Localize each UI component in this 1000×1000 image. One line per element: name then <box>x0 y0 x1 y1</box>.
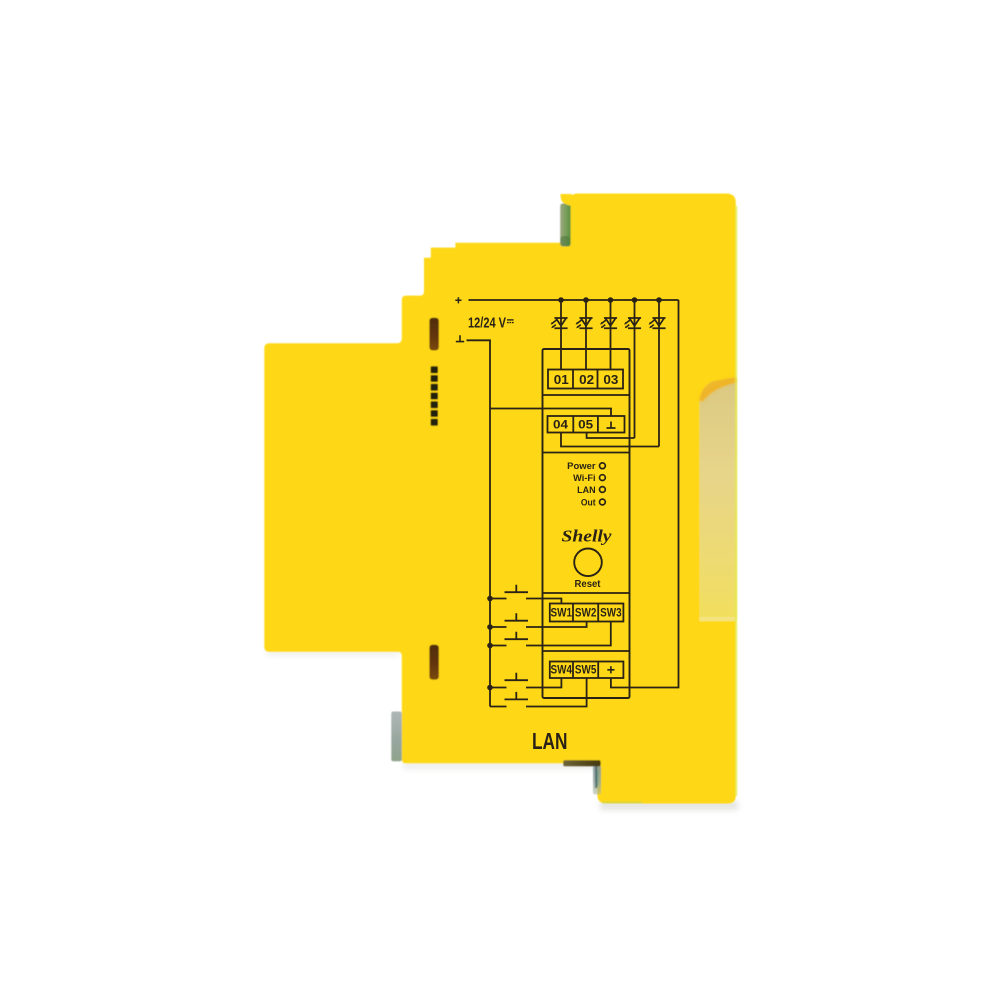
svg-text:LAN: LAN <box>532 728 568 754</box>
svg-text:03: 03 <box>603 373 618 387</box>
svg-text:02: 02 <box>579 373 594 387</box>
svg-text:SW5: SW5 <box>575 663 597 677</box>
svg-text:Power: Power <box>567 461 596 471</box>
svg-text:SW1: SW1 <box>551 606 573 620</box>
svg-text:SW2: SW2 <box>575 606 597 620</box>
svg-text:04: 04 <box>553 418 568 432</box>
svg-text:LAN: LAN <box>577 485 596 495</box>
svg-text:01: 01 <box>554 373 569 387</box>
svg-text:SW4: SW4 <box>551 663 573 677</box>
svg-text:05: 05 <box>578 418 593 432</box>
svg-text:SW3: SW3 <box>600 606 622 620</box>
svg-text:Wi-Fi: Wi-Fi <box>573 473 595 483</box>
svg-text:Out: Out <box>581 497 596 507</box>
svg-text:12/24 V: 12/24 V <box>468 315 506 332</box>
svg-text:Shelly: Shelly <box>562 527 613 546</box>
svg-text:Reset: Reset <box>575 579 602 590</box>
